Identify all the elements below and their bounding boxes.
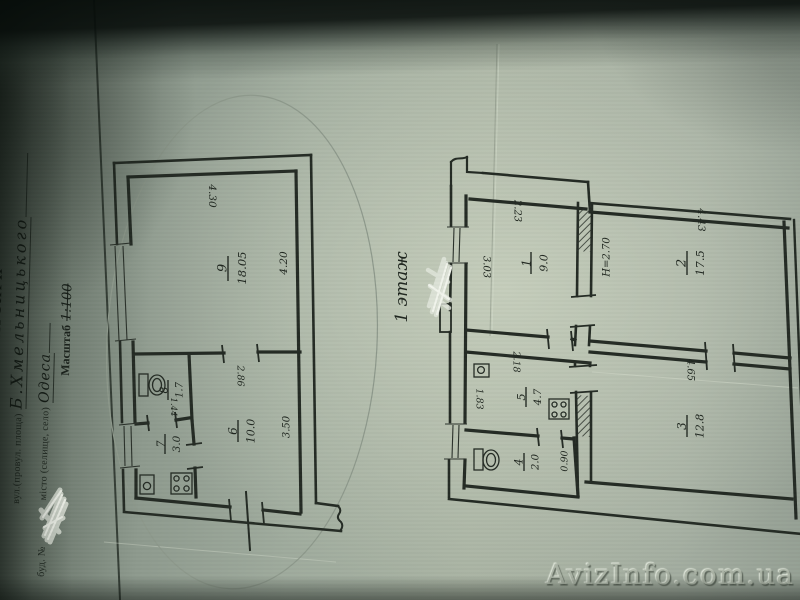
- building-label: буд. №: [36, 546, 48, 577]
- dim-label: 2.86: [235, 364, 246, 386]
- wall-hatching: [576, 208, 591, 437]
- city-underline: [49, 323, 51, 353]
- dim-label: 2.23: [512, 199, 523, 222]
- street-label: вул.(провул. площа): [11, 413, 24, 504]
- dim-label: 1.44: [168, 398, 178, 417]
- dim-label: 2.18: [511, 350, 522, 372]
- room-area: 12.8: [694, 414, 707, 439]
- room-area: 3.0: [171, 435, 183, 452]
- toilet-icon: [474, 449, 499, 470]
- floor-plan-drawing: 4.30 9 18.05 4.20 2.86 6 10.0 3.50 1.44 …: [0, 0, 800, 600]
- watermark: AvizInfo.com.ua: [546, 558, 795, 591]
- ink-layer: ПЛАН КВАРТИРИ вул.(провул. площа) Б.Хмел…: [0, 0, 800, 600]
- dim-label: 4.65: [685, 358, 696, 381]
- floor-note-handwritten: 1 этаж: [392, 251, 412, 323]
- room-area: 4.7: [532, 388, 544, 406]
- form-border-line: [94, 0, 120, 600]
- dim-label: 3.03: [481, 256, 492, 278]
- dim-label: 4.43: [695, 207, 707, 232]
- room-area: 18.05: [235, 252, 249, 285]
- photo-of-floor-plan-document: ПЛАН КВАРТИРИ вул.(провул. площа) Б.Хмел…: [0, 0, 800, 600]
- dim-label: 4.30: [206, 183, 218, 208]
- dim-label: 0.90: [560, 450, 571, 471]
- room-area: 9.0: [538, 254, 551, 272]
- left-plan-walls: [114, 155, 342, 550]
- room-area: 10.0: [245, 419, 258, 444]
- scale-line: Масштаб 1:100: [56, 283, 76, 376]
- room-area: 1.7: [175, 381, 186, 398]
- pencil-ellipse-mark: [94, 88, 389, 595]
- sink-icon: [140, 475, 154, 494]
- stove-icon: [171, 473, 192, 494]
- scale-value: 1:100: [59, 283, 75, 321]
- dim-label: 1.83: [474, 388, 485, 409]
- sink-icon: [474, 364, 489, 377]
- stove-icon: [549, 399, 569, 419]
- dim-label: 4.20: [278, 251, 290, 276]
- building-number-redacted: [45, 500, 46, 546]
- ceiling-height-label: H=2.70: [602, 237, 613, 278]
- scale-label: Масштаб: [58, 325, 73, 376]
- left-plan-labels: 4.30 9 18.05 4.20 2.86 6 10.0 3.50 1.44 …: [155, 183, 293, 454]
- city-label: місто (селище, село): [38, 407, 51, 501]
- dim-label: 3.50: [282, 415, 293, 438]
- room-area: 17.5: [693, 250, 707, 276]
- whiteout-scribble-floor-note: [428, 259, 451, 315]
- left-plan: 4.30 9 18.05 4.20 2.86 6 10.0 3.50 1.44 …: [94, 88, 389, 595]
- room-area: 2.0: [531, 453, 542, 471]
- right-plan-walls: [440, 157, 800, 534]
- city-value-handwritten: Одеса: [37, 353, 55, 403]
- street-underline: [26, 153, 29, 217]
- right-plan: 2.23 3.03 1 9.0 H=2.70 4.43 2 17.5 4.65 …: [440, 157, 800, 534]
